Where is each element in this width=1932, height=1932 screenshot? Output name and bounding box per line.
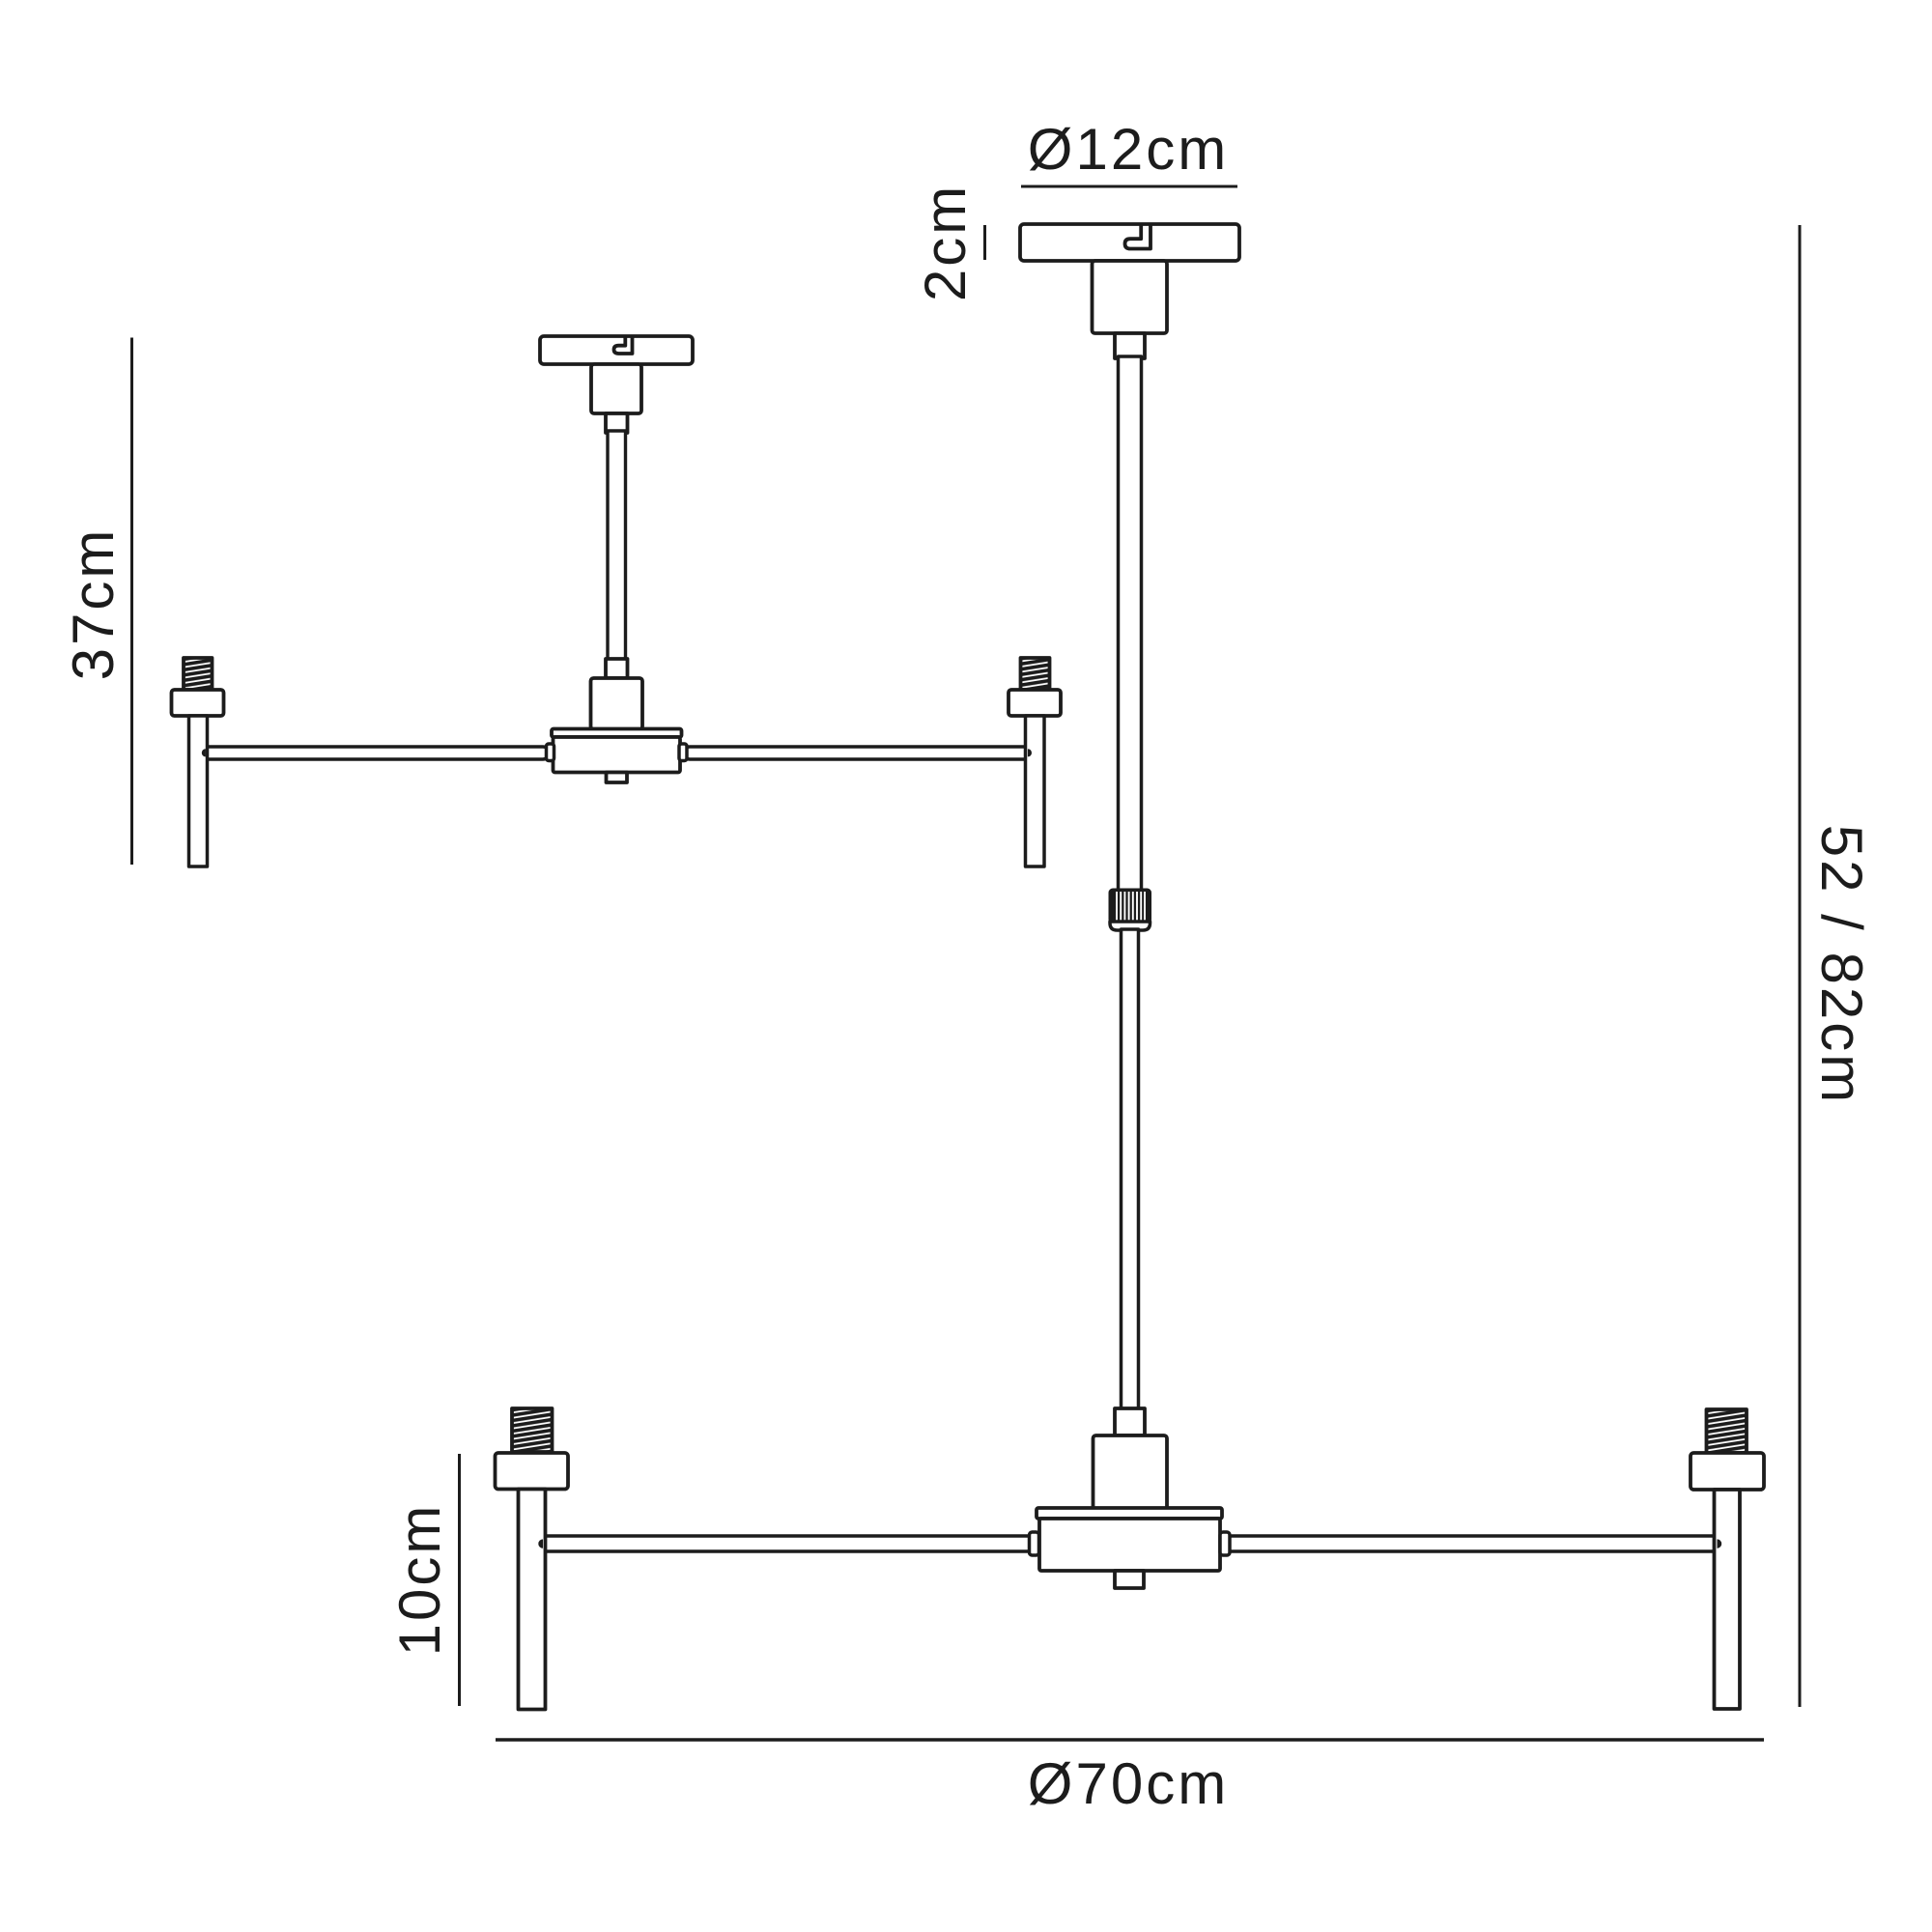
svg-text:10cm: 10cm [387,1503,452,1657]
svg-text:52 / 82cm: 52 / 82cm [1809,825,1874,1105]
svg-text:2cm: 2cm [913,184,978,301]
svg-text:Ø70cm: Ø70cm [1028,1751,1229,1816]
svg-text:Ø12cm: Ø12cm [1028,117,1229,182]
svg-text:37cm: 37cm [61,527,126,681]
